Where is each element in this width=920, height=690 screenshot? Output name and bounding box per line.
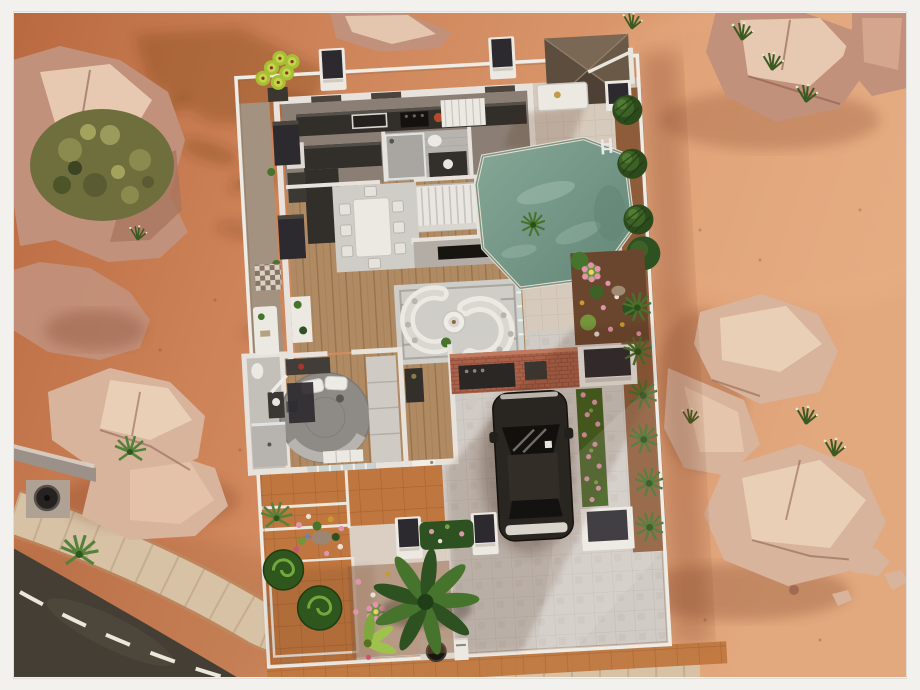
bed-pillow: [325, 376, 348, 390]
entry-hall: [404, 368, 424, 403]
console-table: [290, 296, 313, 343]
shower-bathroom: [381, 127, 474, 182]
dining-table: [353, 197, 392, 257]
bedroom-bench: [323, 449, 364, 463]
car-windshield: [502, 424, 561, 455]
olive-scrub-bush: [30, 109, 174, 221]
car-roof: [507, 452, 559, 501]
entry-console: [404, 368, 424, 403]
planter-pillar-front: [471, 512, 499, 555]
planter-pillar-north: [488, 36, 516, 79]
grill: [458, 363, 515, 390]
lot-render: [0, 0, 920, 690]
dresser: [286, 357, 331, 375]
planter-pillar-north: [318, 48, 346, 91]
checker-mat: [254, 264, 281, 291]
street-trash-bin: [26, 480, 70, 518]
kitchen-sink: [352, 113, 387, 128]
stove: [400, 111, 429, 128]
patio-table: [537, 82, 588, 111]
lot: [224, 26, 727, 689]
car-mirror: [564, 428, 574, 439]
mailbox: [454, 640, 469, 661]
car-mirror: [489, 432, 499, 443]
screenshot: [0, 0, 920, 690]
car-rear-window: [508, 498, 563, 519]
dining-room: [332, 182, 421, 273]
front-hedge: [419, 519, 474, 550]
planter-pillar-front: [395, 516, 423, 559]
